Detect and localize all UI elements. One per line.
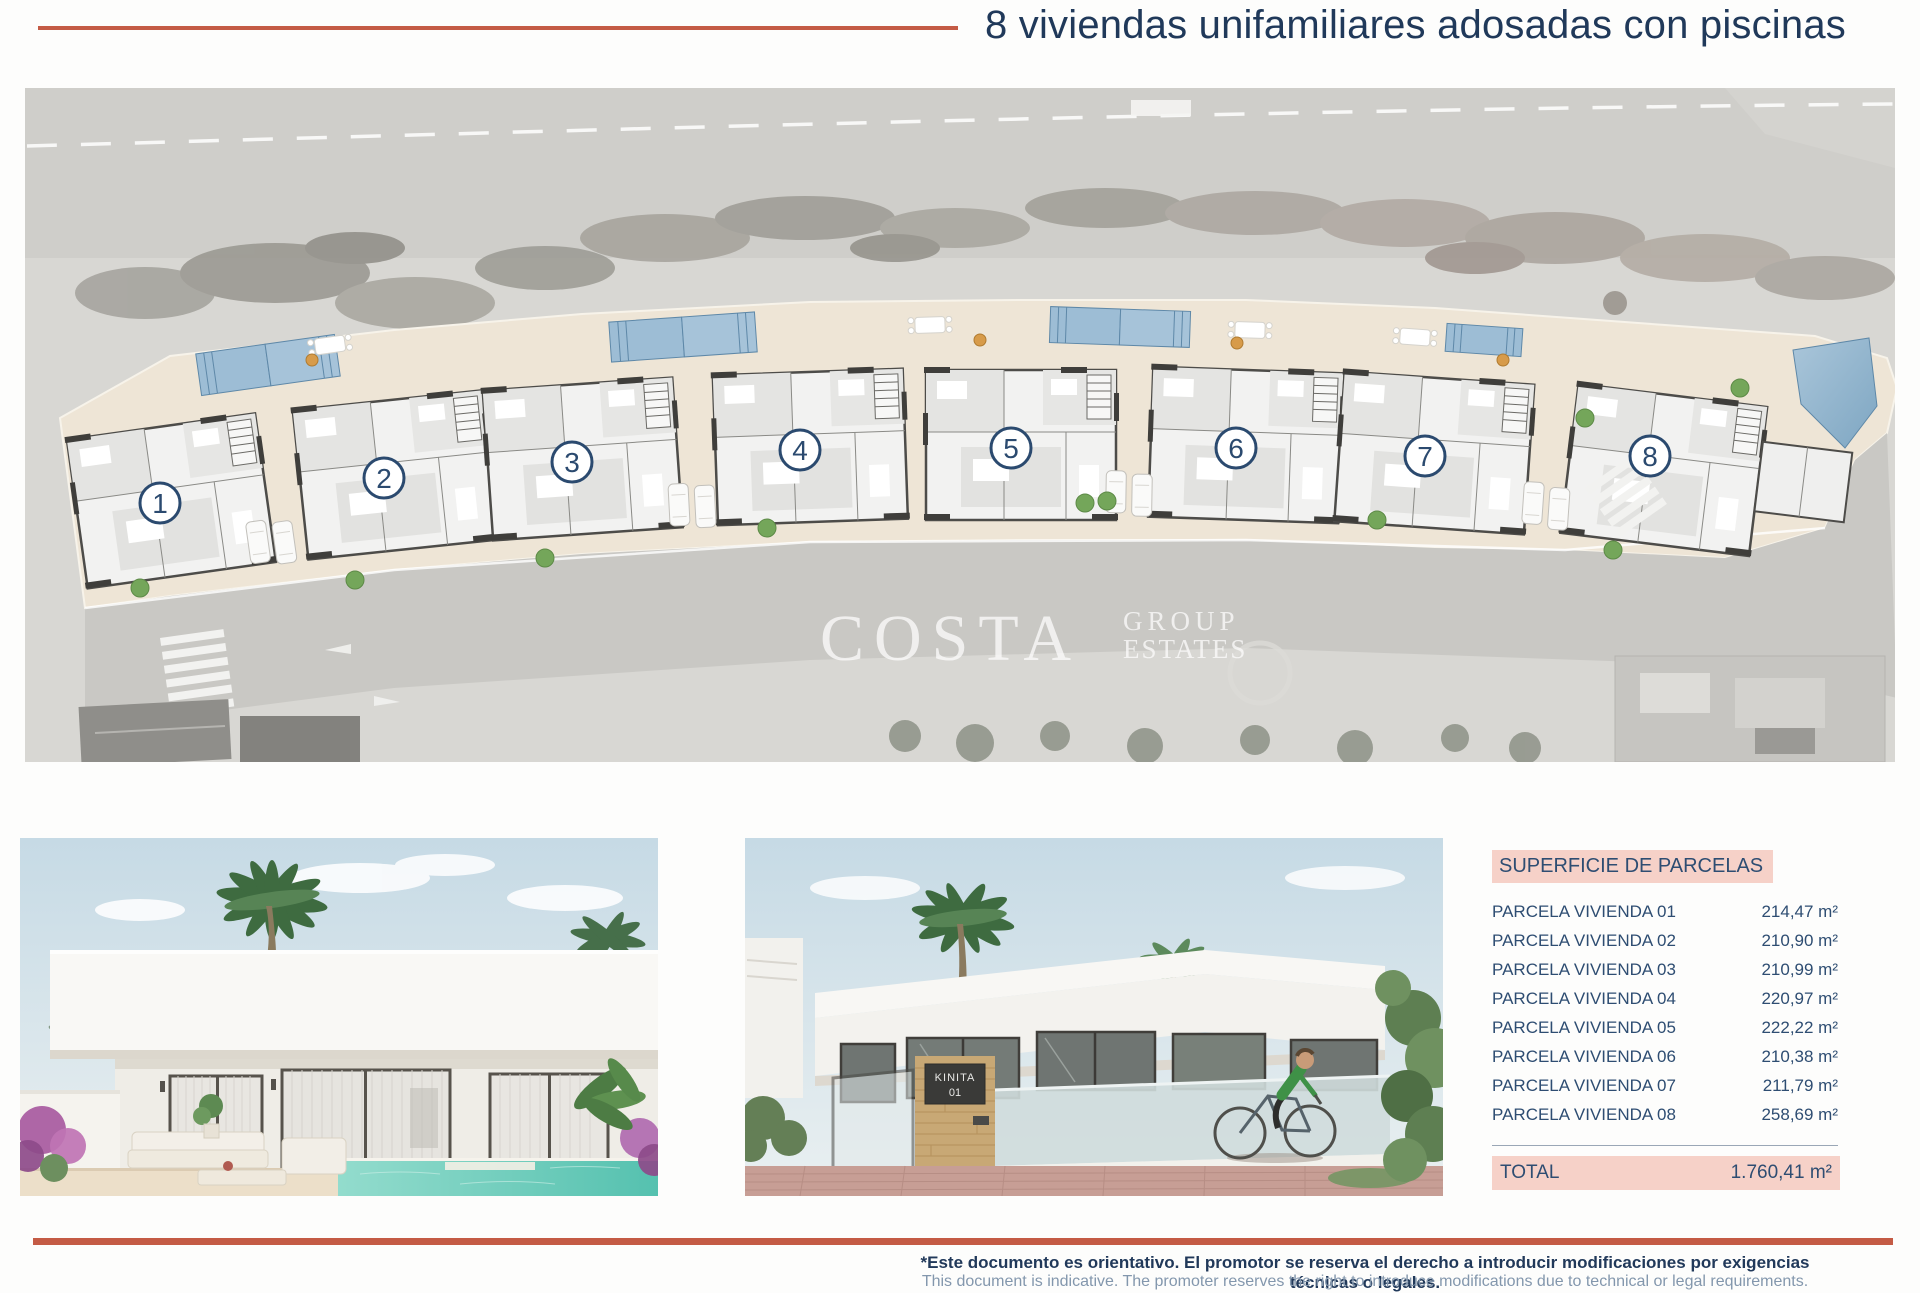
unit-badge-7: 7	[1405, 436, 1445, 476]
table-row: PARCELA VIVIENDA 07 211,79 m²	[1492, 1071, 1844, 1100]
parcel-label: PARCELA VIVIENDA 06	[1492, 1042, 1676, 1071]
footer-rule	[33, 1238, 1893, 1245]
parcel-value: 258,69 m²	[1761, 1100, 1838, 1129]
house-number-sign: KINITA 01	[925, 1064, 985, 1104]
svg-text:KINITA: KINITA	[935, 1072, 976, 1084]
svg-text:ESTATES: ESTATES	[1123, 634, 1247, 664]
parcel-label: PARCELA VIVIENDA 05	[1492, 1013, 1676, 1042]
disclaimer-en: This document is indicative. The promote…	[890, 1273, 1840, 1291]
table-total-row: TOTAL 1.760,41 m²	[1492, 1156, 1840, 1190]
svg-text:8: 8	[1642, 441, 1658, 472]
parcel-label: PARCELA VIVIENDA 03	[1492, 955, 1676, 984]
table-row: PARCELA VIVIENDA 06 210,38 m²	[1492, 1042, 1844, 1071]
parcel-value: 214,47 m²	[1761, 897, 1838, 926]
table-row: PARCELA VIVIENDA 03 210,99 m²	[1492, 955, 1844, 984]
unit-badge-5: 5	[991, 428, 1031, 468]
site-plan-svg: 1 2 3 4 5 6 7 8 COSTA GROUP ESTATES	[25, 88, 1895, 762]
svg-text:3: 3	[564, 447, 580, 478]
parcel-table-header: SUPERFICIE DE PARCELAS	[1492, 850, 1773, 883]
frosted-fence	[993, 1076, 1390, 1166]
table-row: PARCELA VIVIENDA 05 222,22 m²	[1492, 1013, 1844, 1042]
svg-text:5: 5	[1003, 433, 1019, 464]
total-label: TOTAL	[1500, 1162, 1559, 1184]
svg-text:GROUP: GROUP	[1123, 606, 1240, 636]
site-plan-image: 1 2 3 4 5 6 7 8 COSTA GROUP ESTATES	[25, 88, 1895, 762]
parcel-table: SUPERFICIE DE PARCELAS PARCELA VIVIENDA …	[1492, 850, 1844, 1190]
table-row: PARCELA VIVIENDA 01 214,47 m²	[1492, 897, 1844, 926]
unit-badge-2: 2	[364, 458, 404, 498]
street-render: KINITA 01	[745, 838, 1443, 1196]
parcel-label: PARCELA VIVIENDA 02	[1492, 926, 1676, 955]
parcel-label: PARCELA VIVIENDA 04	[1492, 984, 1676, 1013]
svg-text:7: 7	[1417, 441, 1433, 472]
background-building	[745, 938, 807, 1162]
table-row: PARCELA VIVIENDA 04 220,97 m²	[1492, 984, 1844, 1013]
villa-pool-render	[20, 838, 658, 1196]
parcel-label: PARCELA VIVIENDA 01	[1492, 897, 1676, 926]
svg-text:4: 4	[792, 435, 808, 466]
unit-badge-3: 3	[552, 442, 592, 482]
total-value: 1.760,41 m²	[1731, 1162, 1832, 1184]
parcel-label: PARCELA VIVIENDA 07	[1492, 1071, 1676, 1100]
parcel-value: 220,97 m²	[1761, 984, 1838, 1013]
unit-badge-4: 4	[780, 430, 820, 470]
table-row: PARCELA VIVIENDA 08 258,69 m²	[1492, 1100, 1844, 1129]
svg-text:COSTA: COSTA	[820, 602, 1081, 675]
svg-text:1: 1	[152, 488, 168, 519]
svg-text:01: 01	[949, 1087, 961, 1099]
parcel-value: 210,38 m²	[1761, 1042, 1838, 1071]
parcel-value: 210,90 m²	[1761, 926, 1838, 955]
unit-badge-8: 8	[1630, 436, 1670, 476]
table-divider	[1492, 1145, 1838, 1146]
parcel-value: 210,99 m²	[1761, 955, 1838, 984]
page-title: 8 viviendas unifamiliares adosadas con p…	[985, 3, 1915, 48]
parcel-value: 222,22 m²	[1761, 1013, 1838, 1042]
title-rule	[38, 26, 958, 30]
unit-badge-1: 1	[140, 483, 180, 523]
brick-pavement	[745, 1166, 1443, 1196]
parcel-value: 211,79 m²	[1763, 1071, 1838, 1100]
table-row: PARCELA VIVIENDA 02 210,90 m²	[1492, 926, 1844, 955]
unit-badge-6: 6	[1216, 428, 1256, 468]
svg-text:6: 6	[1228, 433, 1244, 464]
svg-text:2: 2	[376, 463, 392, 494]
parcel-label: PARCELA VIVIENDA 08	[1492, 1100, 1676, 1129]
